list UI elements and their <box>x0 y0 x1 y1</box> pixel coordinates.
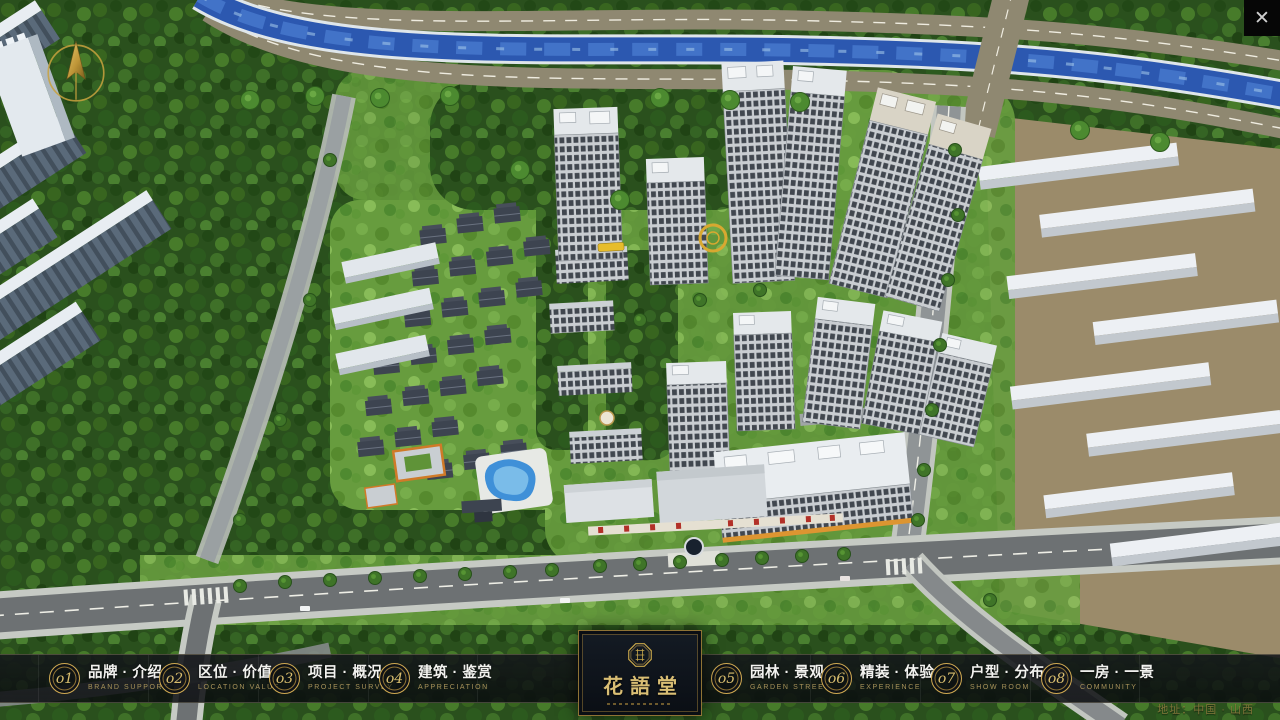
nav-item-floorplan-distribution[interactable]: o7 户型 · 分布SHOW ROOM <box>920 655 1030 702</box>
nav-number: o7 <box>938 671 955 687</box>
nav-number: o6 <box>828 671 845 687</box>
nav-number-badge: o3 <box>269 663 300 694</box>
nav-number: o1 <box>56 671 73 687</box>
nav-number-badge: o7 <box>931 663 962 694</box>
nav-title: 一房 · 一景 <box>1080 666 1154 681</box>
nav-number-badge: o2 <box>159 663 190 694</box>
nav-number-badge: o4 <box>379 663 410 694</box>
masterplan-3d-viewport[interactable] <box>0 0 1280 720</box>
nav-subtitle: COMMUNITY <box>1080 684 1154 691</box>
nav-number-badge: o6 <box>821 663 852 694</box>
nav-number: o2 <box>166 671 183 687</box>
nav-subtitle: APPRECIATION <box>418 684 492 691</box>
sales-presentation-window: ✕ o1 品牌 · 介绍BRAND SUPPORT o2 区位 · 价值LOCA… <box>0 0 1280 720</box>
nav-number: o4 <box>386 671 403 687</box>
nav-number-badge: o5 <box>711 663 742 694</box>
nav-number-badge: o8 <box>1041 663 1072 694</box>
nav-title: 建筑 · 鉴赏 <box>418 666 492 681</box>
nav-item-interior-experience[interactable]: o6 精装 · 体验EXPERIENCE <box>810 655 920 702</box>
nav-number: o3 <box>276 671 293 687</box>
project-logo-title: 花語堂 <box>596 670 684 699</box>
nav-number: o8 <box>1048 671 1065 687</box>
nav-item-location-value[interactable]: o2 区位 · 价值LOCATION VALUE <box>148 655 258 702</box>
nav-group-left: o1 品牌 · 介绍BRAND SUPPORT o2 区位 · 价值LOCATI… <box>38 655 578 702</box>
close-button[interactable]: ✕ <box>1244 0 1280 36</box>
nav-item-project-overview[interactable]: o3 项目 · 概况PROJECT SURVEY <box>258 655 368 702</box>
nav-item-brand-intro[interactable]: o1 品牌 · 介绍BRAND SUPPORT <box>38 655 148 702</box>
project-logo-panel[interactable]: 花語堂 <box>578 630 702 716</box>
entrance-plaza-emblem <box>685 538 703 556</box>
nav-item-landscape[interactable]: o5 园林 · 景观GARDEN STREET <box>700 655 810 702</box>
logo-ornament-rule <box>607 703 673 705</box>
nav-group-right: o5 园林 · 景观GARDEN STREET o6 精装 · 体验EXPERI… <box>700 655 1240 702</box>
nav-item-architecture[interactable]: o4 建筑 · 鉴赏APPRECIATION <box>368 655 478 702</box>
project-address: 地址：中国 · 山西 <box>1157 701 1254 717</box>
logo-seal-icon <box>627 642 653 668</box>
nav-item-room-view[interactable]: o8 一房 · 一景COMMUNITY <box>1030 655 1140 702</box>
nav-number-badge: o1 <box>49 663 80 694</box>
compass-north-icon <box>40 36 112 108</box>
nav-number: o5 <box>718 671 735 687</box>
